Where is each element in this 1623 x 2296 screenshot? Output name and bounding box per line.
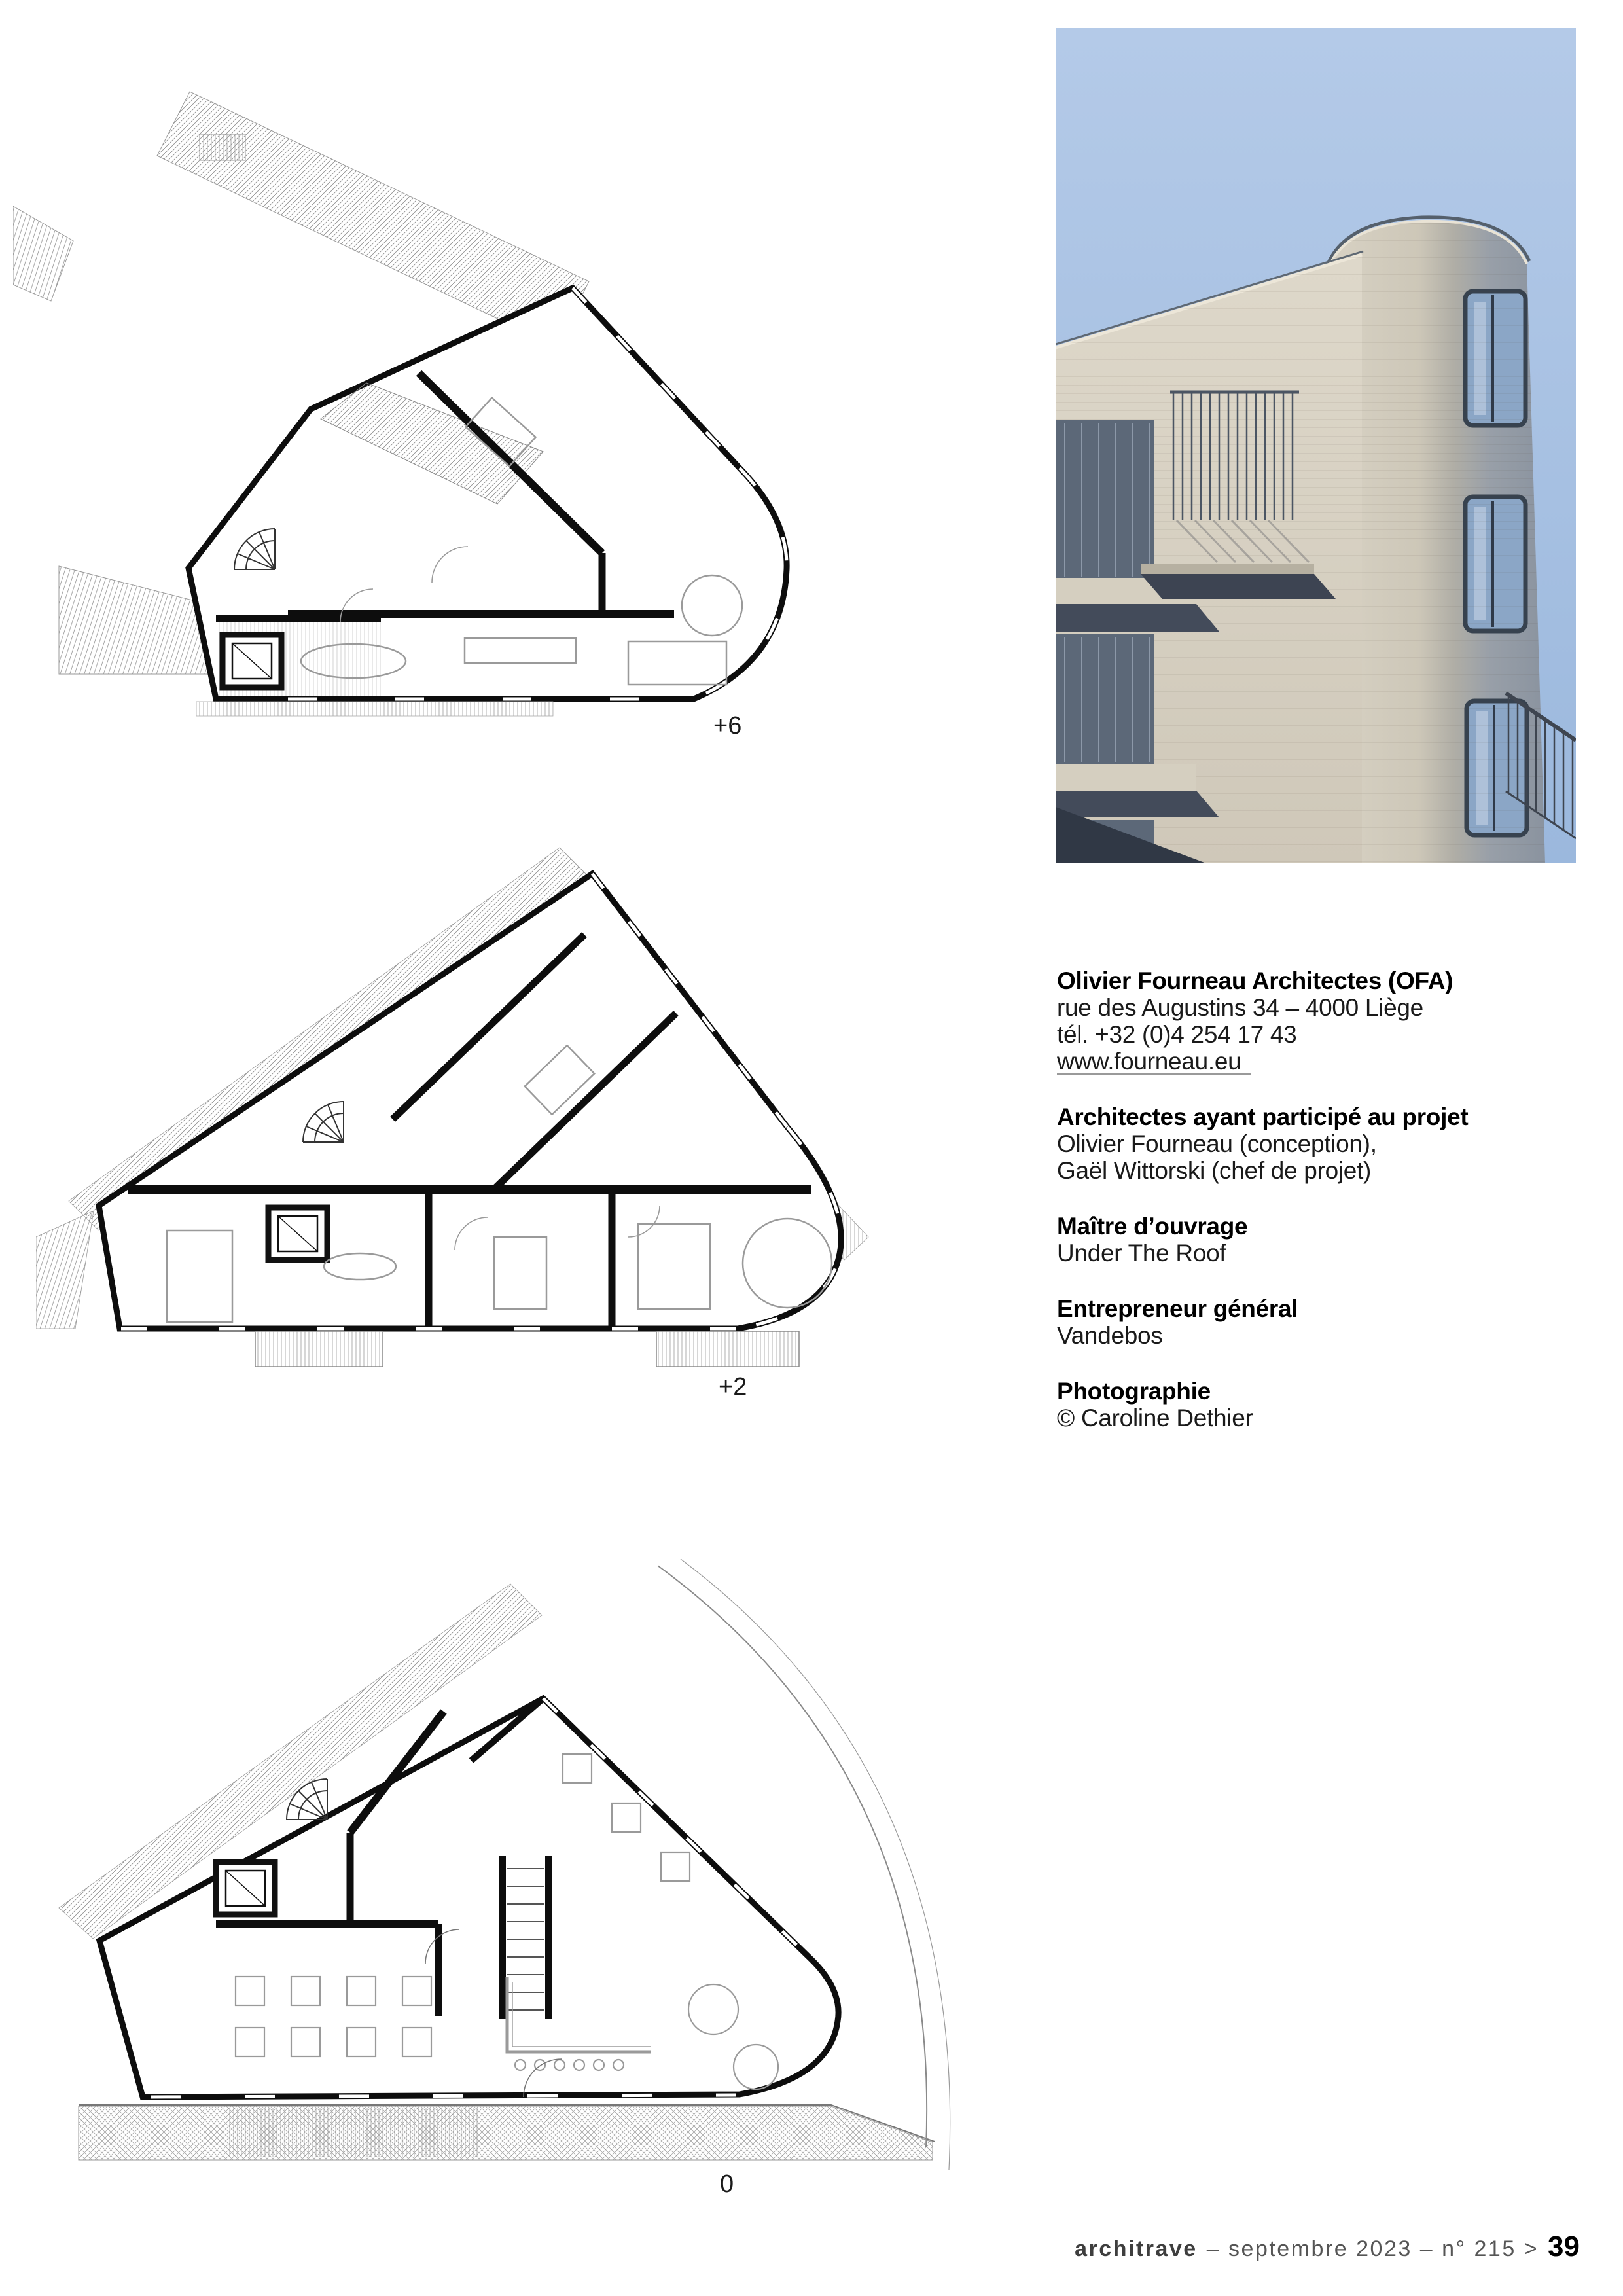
credit-section-photography: Photographie © Caroline Dethier (1057, 1378, 1574, 1431)
credit-section-contractor: Entrepreneur général Vandebos (1057, 1295, 1574, 1349)
floor-plan-plus2 (36, 844, 887, 1407)
credit-line: Olivier Fourneau (conception), (1057, 1130, 1574, 1157)
credit-line: Vandebos (1057, 1322, 1574, 1349)
credit-line: Gaël Wittorski (chef de projet) (1057, 1157, 1574, 1184)
floor-plan-ground-drawing (20, 1558, 969, 2189)
credit-heading: Olivier Fourneau Architectes (OFA) (1057, 967, 1574, 994)
building-photo (1056, 28, 1576, 863)
architect-website-link[interactable]: www.fourneau.eu (1057, 1049, 1251, 1075)
plan-label-ground: 0 (720, 2172, 734, 2197)
issue-info: – septembre 2023 – n° 215 > (1207, 2236, 1539, 2262)
plan-label-plus2: +2 (719, 1374, 747, 1399)
credit-line: Under The Roof (1057, 1240, 1574, 1266)
magazine-name: architrave (1075, 2236, 1198, 2262)
credit-section-team: Architectes ayant participé au projet Ol… (1057, 1103, 1574, 1184)
credit-heading: Photographie (1057, 1378, 1574, 1405)
credit-line: rue des Augustins 34 – 4000 Liège (1057, 994, 1574, 1021)
credit-heading: Architectes ayant participé au projet (1057, 1103, 1574, 1130)
building-photo-drawing (1056, 28, 1576, 863)
project-credits: Olivier Fourneau Architectes (OFA) rue d… (1057, 967, 1574, 1460)
credit-section-client: Maître d’ouvrage Under The Roof (1057, 1213, 1574, 1266)
magazine-page: +6 (0, 0, 1623, 2296)
credit-line: © Caroline Dethier (1057, 1405, 1574, 1431)
floor-plan-plus6 (13, 85, 818, 726)
floor-plan-ground (20, 1558, 969, 2189)
credit-section-architect: Olivier Fourneau Architectes (OFA) rue d… (1057, 967, 1574, 1075)
page-number: 39 (1548, 2231, 1580, 2263)
floor-plan-plus6-drawing (13, 85, 818, 726)
credit-heading: Entrepreneur général (1057, 1295, 1574, 1322)
plan-label-plus6: +6 (713, 713, 741, 738)
page-footer: architrave – septembre 2023 – n° 215 > 3… (1075, 2231, 1580, 2263)
building-outline (99, 1698, 838, 2097)
credit-heading: Maître d’ouvrage (1057, 1213, 1574, 1240)
floor-plan-plus2-drawing (36, 844, 887, 1407)
credit-line: tél. +32 (0)4 254 17 43 (1057, 1021, 1574, 1048)
